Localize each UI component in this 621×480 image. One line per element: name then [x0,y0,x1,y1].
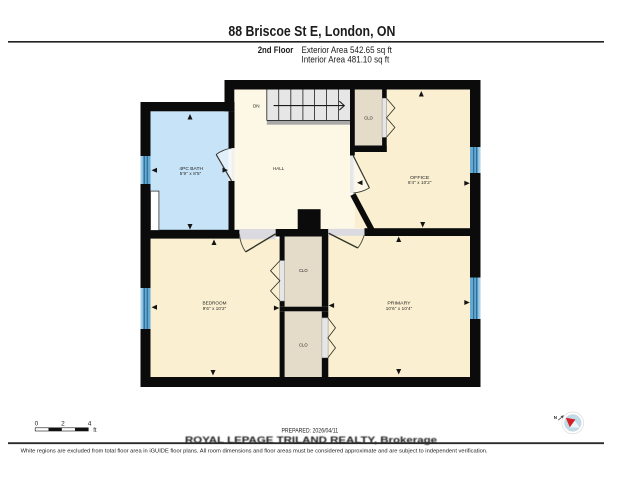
svg-text:ft: ft [93,428,97,434]
svg-text:88 Briscoe St E, London, ON: 88 Briscoe St E, London, ON [228,24,395,40]
svg-text:CLO: CLO [299,342,308,347]
svg-text:White regions are excluded fro: White regions are excluded from total fl… [21,449,488,455]
svg-text:Exterior Area 542.65 sq ft: Exterior Area 542.65 sq ft [302,45,393,55]
svg-text:0: 0 [35,421,39,428]
svg-text:N: N [554,415,557,420]
svg-text:HALL: HALL [273,166,285,171]
svg-text:4: 4 [88,421,92,428]
svg-text:CLO: CLO [364,115,373,120]
svg-text:9'6" x 10'2": 9'6" x 10'2" [203,306,227,311]
svg-text:CLO: CLO [299,268,308,273]
svg-text:10'6" x 10'4": 10'6" x 10'4" [386,306,413,311]
svg-text:Interior Area 481.10 sq ft: Interior Area 481.10 sq ft [302,55,390,65]
svg-text:2: 2 [61,421,65,428]
svg-text:PREPARED: 2026/04/11: PREPARED: 2026/04/11 [281,428,338,434]
svg-text:8'4" x 10'2": 8'4" x 10'2" [408,180,432,185]
svg-text:5'9" x 8'5": 5'9" x 8'5" [180,171,202,176]
svg-text:2nd Floor: 2nd Floor [258,45,294,55]
svg-text:DN: DN [253,104,260,109]
